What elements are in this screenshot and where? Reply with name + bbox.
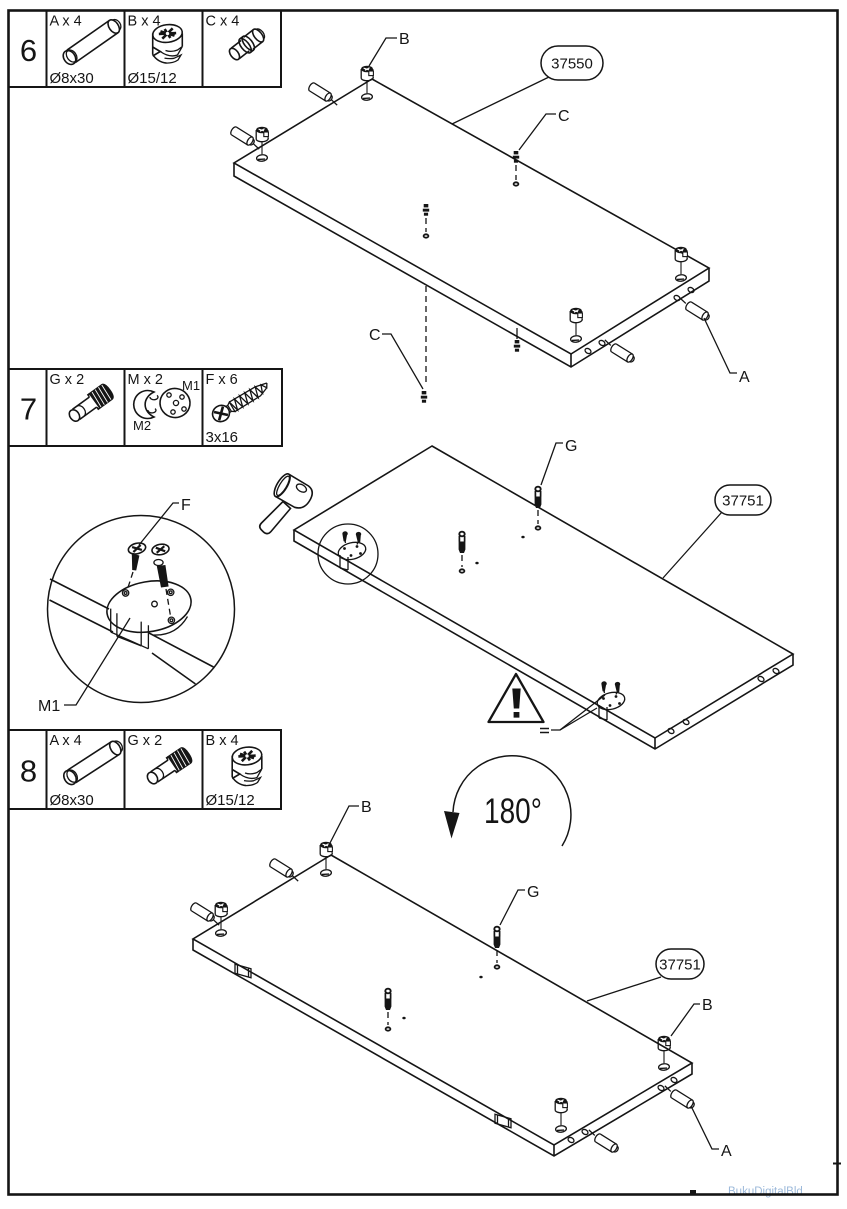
- svg-text:M1: M1: [38, 698, 60, 715]
- svg-text:Ø15/12: Ø15/12: [128, 70, 177, 87]
- svg-text:Ø15/12: Ø15/12: [206, 792, 255, 809]
- svg-text:C: C: [558, 108, 570, 125]
- svg-text:B x 4: B x 4: [206, 733, 239, 749]
- svg-text:M2: M2: [133, 418, 151, 433]
- svg-text:37751: 37751: [659, 957, 701, 974]
- svg-text:37751: 37751: [722, 493, 764, 510]
- svg-text:A x 4: A x 4: [50, 14, 82, 30]
- svg-text:Ø8x30: Ø8x30: [50, 70, 94, 87]
- svg-text:BukuDigitalBld: BukuDigitalBld: [728, 1186, 803, 1198]
- svg-text:A: A: [721, 1143, 732, 1160]
- svg-text:A: A: [739, 369, 750, 386]
- svg-text:M x 2: M x 2: [128, 372, 163, 388]
- svg-text:7: 7: [20, 392, 37, 427]
- svg-text:180°: 180°: [484, 791, 542, 831]
- svg-text:G: G: [527, 884, 539, 901]
- svg-text:3x16: 3x16: [206, 429, 239, 446]
- svg-text:8: 8: [20, 754, 37, 789]
- svg-text:F x 6: F x 6: [206, 372, 238, 388]
- svg-text:Ø8x30: Ø8x30: [50, 792, 94, 809]
- svg-text:C: C: [369, 327, 381, 344]
- svg-text:B x 4: B x 4: [128, 14, 161, 30]
- svg-text:M1: M1: [182, 378, 200, 393]
- svg-text:37550: 37550: [551, 56, 593, 73]
- svg-text:B: B: [399, 31, 410, 48]
- svg-text:G x 2: G x 2: [128, 733, 163, 749]
- svg-text:B: B: [702, 997, 713, 1014]
- svg-text:G: G: [565, 438, 577, 455]
- svg-text:G x 2: G x 2: [50, 372, 85, 388]
- svg-text:6: 6: [20, 33, 37, 68]
- svg-text:A x 4: A x 4: [50, 733, 82, 749]
- svg-text:B: B: [361, 799, 372, 816]
- svg-text:C x 4: C x 4: [206, 14, 240, 30]
- svg-text:F: F: [181, 497, 191, 514]
